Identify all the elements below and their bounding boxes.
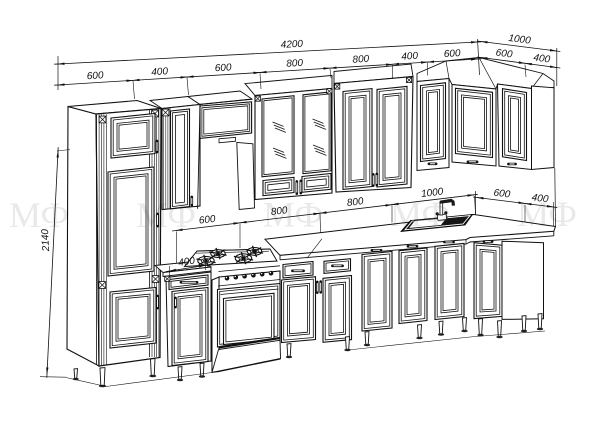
svg-text:4200: 4200 (280, 39, 303, 51)
svg-text:400: 400 (533, 52, 551, 65)
svg-text:МФ: МФ (517, 194, 577, 234)
svg-text:400: 400 (401, 51, 419, 63)
svg-text:600: 600 (495, 47, 513, 60)
svg-text:400: 400 (151, 66, 169, 78)
svg-text:600: 600 (493, 188, 511, 201)
svg-text:600: 600 (86, 70, 104, 82)
svg-text:800: 800 (352, 54, 370, 66)
svg-text:800: 800 (346, 196, 364, 209)
svg-text:МФ: МФ (390, 194, 450, 234)
svg-text:600: 600 (443, 48, 461, 60)
svg-text:600: 600 (214, 62, 232, 74)
svg-text:800: 800 (286, 58, 304, 70)
svg-text:МФ: МФ (263, 195, 323, 235)
svg-text:600: 600 (198, 214, 216, 227)
svg-text:МФ: МФ (9, 195, 69, 235)
svg-text:МФ: МФ (136, 195, 196, 235)
